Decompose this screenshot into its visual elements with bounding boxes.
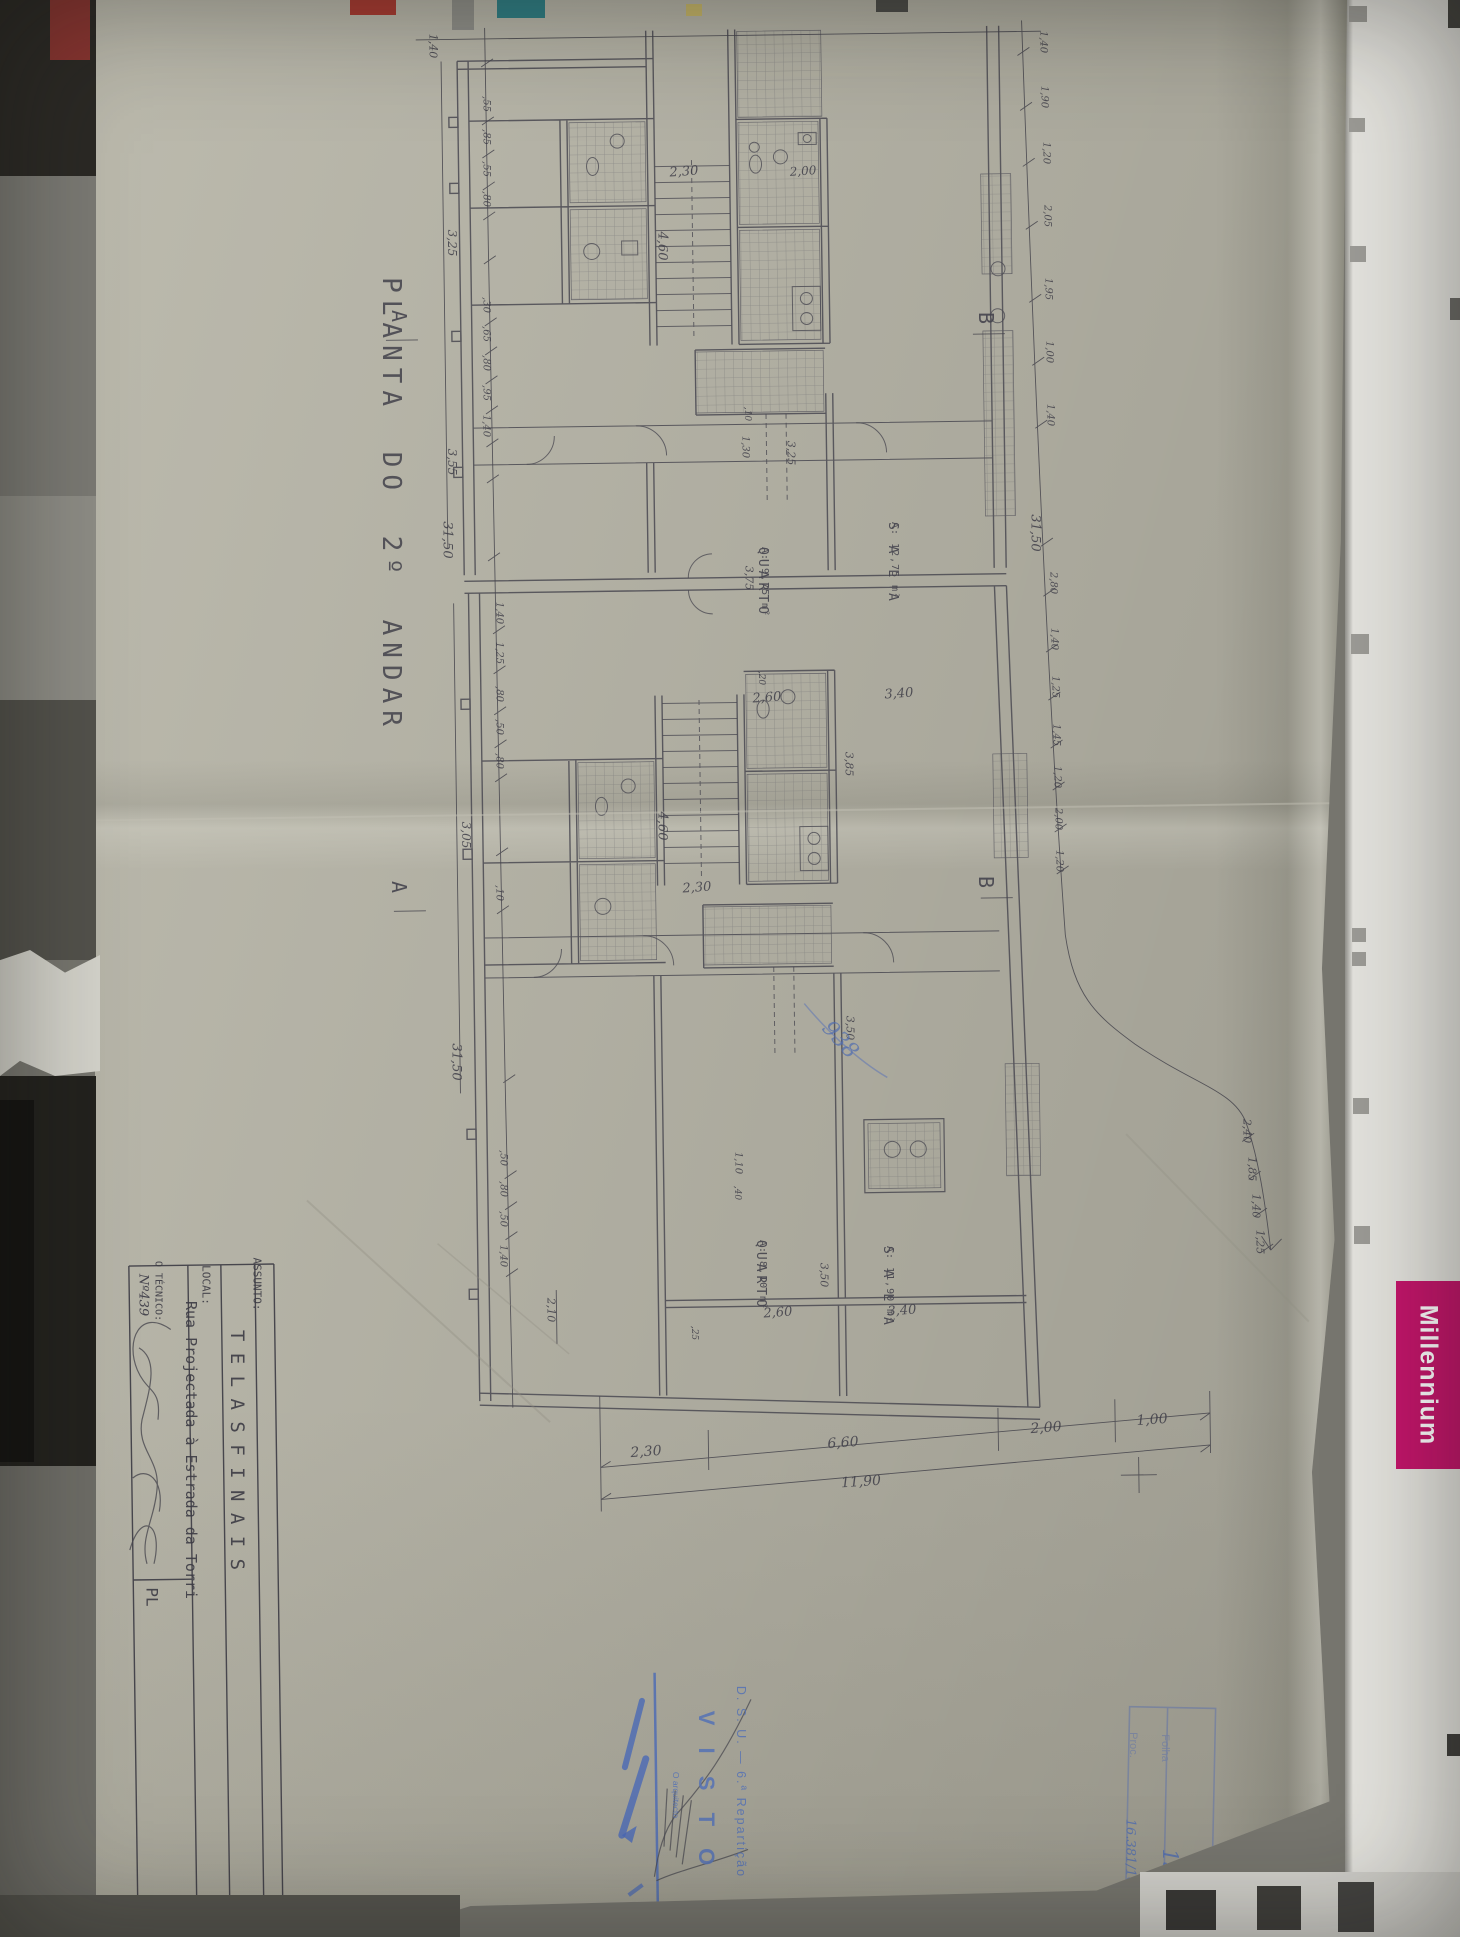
tiled-floors [568,27,1041,1192]
left-strip-black-core [0,1100,34,1462]
receipt-glyph [1353,1098,1369,1114]
dimension-chains [382,17,1286,1514]
dimension-tick [1032,357,1044,365]
floor-plan-svg [0,0,1460,1937]
receipt-glyph-dark [1450,298,1460,320]
receipt-glyph [1350,246,1366,262]
bottom-right-key2 [1257,1886,1301,1930]
dimension-tick [495,774,507,782]
stairs [654,160,739,881]
receipt-glyph-dark [1447,1734,1460,1756]
receipt-glyph-dark [1448,0,1460,28]
dimension-tick [496,848,508,856]
dimension-tick [1023,158,1035,166]
dimension-tick [485,347,497,355]
dimension-tick [495,740,507,748]
millennium-brand-label: Millennium [1414,1305,1443,1446]
dimension-tick [484,256,496,264]
receipt-glyph [1352,928,1366,942]
dimension-tick [485,318,497,326]
dimension-tick [1053,782,1065,790]
dimension-tick [1249,1171,1261,1179]
left-shadow-strip [0,0,96,176]
dimension-tick [494,666,506,674]
dimension-tick [1029,294,1041,302]
dimension-tick [506,1269,518,1277]
bottom-right-key1 [1166,1890,1216,1930]
title-block-frame [129,1264,283,1937]
folha-box [1125,1707,1215,1910]
dimension-tick [1026,221,1038,229]
dimension-tick [488,553,500,561]
dimension-tick [1057,866,1069,874]
dimension-tick [497,906,509,914]
dimension-tick [481,59,493,67]
red-object [50,0,90,60]
white-cloth-patch [0,950,100,1076]
left-strip-black [0,1076,96,1466]
receipt-glyph [1352,952,1366,966]
dimension-tick [483,212,495,220]
receipt-glyph [1354,1226,1370,1244]
visto-stamp-lines [620,1671,754,1917]
receipt-strip: Millennium [1345,0,1460,1937]
dimension-tick [1242,1133,1254,1141]
tecnico-signature [127,1322,174,1564]
dimension-tick [493,626,505,634]
creases [97,803,1357,1428]
photo-of-blueprint: Millennium [0,0,1460,1937]
blue-note-stroke [804,1002,887,1078]
dimension-tick [1255,1208,1267,1216]
dimension-tick [505,1232,517,1240]
dimension-tick [482,150,494,158]
left-strip-dark [0,700,96,960]
left-strip-light [0,496,96,706]
dimension-tick [483,182,495,190]
paper-edge-shadow [1345,0,1353,1937]
dimension-tick [1020,102,1032,110]
receipt-glyph [1351,634,1369,654]
dimension-tick [1055,824,1067,832]
blueprint-paper: PLANTA DO 2º ANDAR QUARTOA: 9,75 m²S A L… [95,0,1347,1937]
left-strip-bottom [0,1466,96,1906]
dimension-tick [1051,740,1063,748]
left-strip-mid [0,176,96,496]
millennium-brand-block: Millennium [1396,1281,1460,1469]
receipt-glyph [1349,118,1365,132]
dimension-tick [494,707,506,715]
dimension-tick [1017,47,1029,55]
dimension-tick [505,1171,517,1179]
dimension-tick [505,1202,517,1210]
receipt-glyph [1349,6,1367,22]
